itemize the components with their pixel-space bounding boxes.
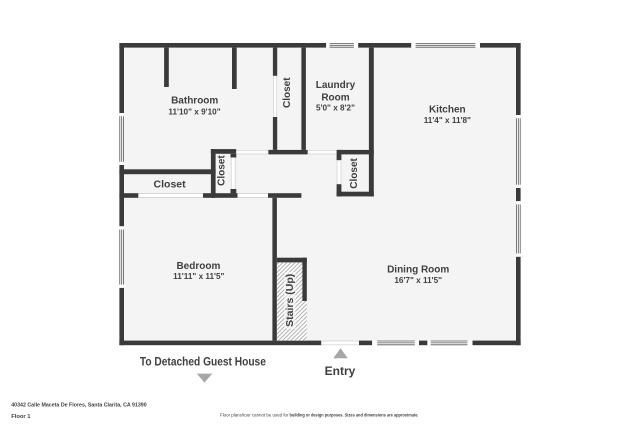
svg-text:building or design purposes. S: building or design purposes. Sizes and d… bbox=[290, 413, 419, 418]
svg-text:Floor plans/tour cannot be use: Floor plans/tour cannot be used for bbox=[220, 413, 289, 418]
svg-text:Kitchen: Kitchen bbox=[429, 105, 466, 116]
svg-text:To Detached Guest House: To Detached Guest House bbox=[140, 355, 266, 369]
svg-text:Stairs (Up): Stairs (Up) bbox=[284, 274, 296, 327]
svg-text:Closet: Closet bbox=[217, 155, 228, 186]
svg-text:11'11" x 11'5": 11'11" x 11'5" bbox=[173, 272, 224, 281]
svg-text:Closet: Closet bbox=[282, 77, 293, 108]
svg-text:Dining Room: Dining Room bbox=[387, 264, 449, 275]
svg-text:Room: Room bbox=[321, 92, 349, 103]
svg-text:11'4" x 11'8": 11'4" x 11'8" bbox=[424, 116, 471, 125]
svg-text:40342 Calle Maceta De Flores,: 40342 Calle Maceta De Flores, Santa Clar… bbox=[11, 403, 147, 409]
svg-text:Laundry: Laundry bbox=[316, 80, 356, 91]
svg-text:11'10" x 9'10": 11'10" x 9'10" bbox=[168, 108, 220, 117]
svg-text:Entry: Entry bbox=[325, 364, 356, 378]
svg-text:Bathroom: Bathroom bbox=[171, 96, 218, 107]
svg-text:5'0" x 8'2": 5'0" x 8'2" bbox=[316, 104, 355, 113]
svg-text:Closet: Closet bbox=[349, 157, 360, 188]
svg-text:Closet: Closet bbox=[154, 179, 187, 191]
svg-text:16'7" x 11'5": 16'7" x 11'5" bbox=[394, 276, 442, 285]
svg-text:Bedroom: Bedroom bbox=[176, 261, 220, 272]
svg-text:Floor 1: Floor 1 bbox=[11, 414, 31, 420]
